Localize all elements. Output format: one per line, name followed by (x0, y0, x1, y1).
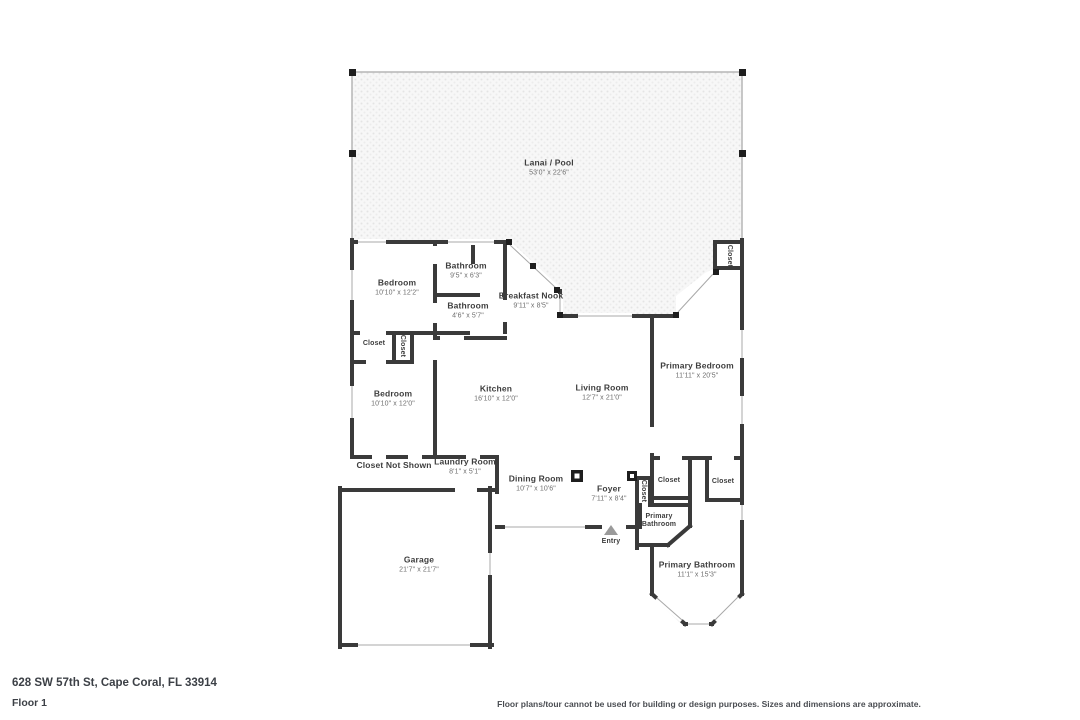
post-centers (575, 474, 635, 479)
windows (352, 242, 742, 645)
floorplan-canvas: Lanai / Pool 53'0" x 22'6" Bathroom 9'5"… (0, 0, 1080, 720)
address-text: 628 SW 57th St, Cape Coral, FL 33914 (12, 677, 217, 689)
disclaimer-text: Floor plans/tour cannot be used for buil… (368, 699, 1050, 709)
walls (340, 240, 742, 647)
entry-arrow-icon (604, 525, 618, 535)
floorplan-drawing (0, 0, 1080, 720)
floor-label: Floor 1 (12, 697, 47, 709)
